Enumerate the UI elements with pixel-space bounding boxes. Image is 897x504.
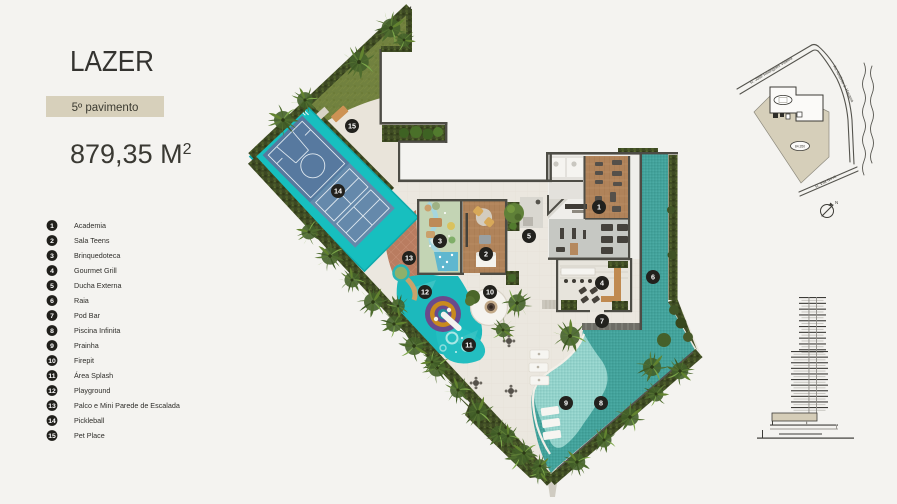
svg-text:12: 12	[421, 288, 429, 297]
svg-text:8: 8	[50, 328, 54, 335]
svg-text:Área Splash: Área Splash	[74, 371, 113, 380]
svg-text:11: 11	[465, 341, 473, 350]
svg-text:Pickleball: Pickleball	[74, 416, 105, 425]
svg-text:Gourmet Grill: Gourmet Grill	[74, 266, 117, 275]
svg-text:Raia: Raia	[74, 296, 89, 305]
svg-text:15: 15	[348, 122, 356, 131]
svg-text:9: 9	[50, 343, 54, 350]
svg-text:1: 1	[597, 203, 601, 212]
svg-text:13: 13	[48, 403, 56, 410]
svg-text:Academia: Academia	[74, 221, 106, 230]
svg-text:Sala Teens: Sala Teens	[74, 236, 110, 245]
svg-text:1: 1	[50, 223, 54, 230]
svg-text:3: 3	[438, 237, 442, 246]
svg-text:2: 2	[50, 238, 54, 245]
svg-text:Palco e Mini Parede de Escalad: Palco e Mini Parede de Escalada	[74, 401, 180, 410]
svg-text:12: 12	[48, 388, 56, 395]
svg-text:10: 10	[48, 358, 56, 365]
svg-text:Prainha: Prainha	[74, 341, 99, 350]
svg-text:Playground: Playground	[74, 386, 110, 395]
svg-text:5: 5	[50, 283, 54, 290]
svg-text:14: 14	[48, 418, 56, 425]
svg-text:4: 4	[50, 268, 54, 275]
svg-text:Piscina Infinita: Piscina Infinita	[74, 326, 120, 335]
svg-text:8: 8	[599, 399, 603, 408]
svg-text:Pet Place: Pet Place	[74, 431, 105, 440]
svg-text:879,35 M2: 879,35 M2	[70, 139, 192, 169]
svg-text:LAZER: LAZER	[70, 46, 154, 78]
svg-text:4: 4	[600, 279, 604, 288]
svg-text:N: N	[835, 200, 838, 205]
svg-text:Ducha Externa: Ducha Externa	[74, 281, 122, 290]
svg-text:2: 2	[484, 250, 488, 259]
svg-text:Pod Bar: Pod Bar	[74, 311, 101, 320]
svg-text:84.350: 84.350	[795, 145, 805, 149]
svg-text:11: 11	[48, 373, 55, 380]
svg-text:7: 7	[600, 317, 604, 326]
svg-text:9: 9	[564, 399, 568, 408]
svg-text:10: 10	[486, 288, 494, 297]
svg-text:6: 6	[651, 273, 655, 282]
svg-text:13: 13	[405, 254, 413, 263]
svg-text:14: 14	[334, 187, 342, 196]
svg-text:Brinquedoteca: Brinquedoteca	[74, 251, 120, 260]
svg-text:3: 3	[50, 253, 54, 260]
svg-text:Firepit: Firepit	[74, 356, 94, 365]
svg-text:6: 6	[50, 298, 54, 305]
svg-text:5: 5	[527, 232, 531, 241]
svg-text:5º pavimento: 5º pavimento	[72, 102, 139, 114]
svg-text:15: 15	[48, 433, 56, 440]
svg-text:7: 7	[50, 313, 54, 320]
